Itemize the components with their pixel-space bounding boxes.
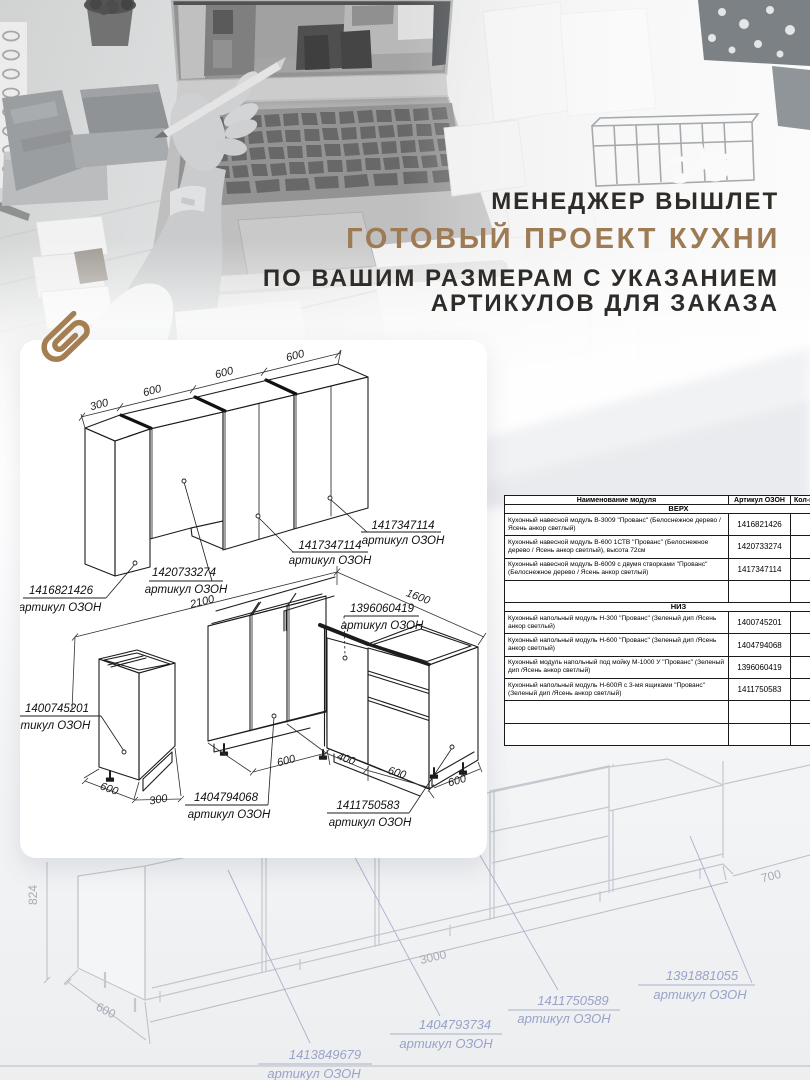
svg-text:3000: 3000 [418, 947, 448, 967]
svg-text:600: 600 [142, 383, 164, 400]
svg-text:артикул ОЗОН: артикул ОЗОН [20, 720, 91, 732]
svg-text:1411750583: 1411750583 [336, 800, 400, 812]
svg-text:артикул ОЗОН: артикул ОЗОН [267, 1066, 361, 1080]
svg-text:600: 600 [214, 365, 236, 382]
svg-text:1413849679: 1413849679 [289, 1047, 361, 1062]
svg-text:артикул ОЗОН: артикул ОЗОН [517, 1011, 611, 1026]
svg-text:400: 400 [335, 750, 357, 768]
svg-text:600: 600 [276, 753, 298, 770]
svg-text:артикул ОЗОН: артикул ОЗОН [289, 555, 372, 567]
svg-text:артикул ОЗОН: артикул ОЗОН [329, 817, 412, 829]
svg-text:1404793734: 1404793734 [419, 1017, 491, 1032]
svg-text:1417347114: 1417347114 [371, 520, 434, 532]
svg-text:824: 824 [26, 885, 40, 905]
svg-text:600: 600 [98, 780, 120, 798]
svg-text:артикул ОЗОН: артикул ОЗОН [341, 620, 424, 632]
svg-text:артикул ОЗОН: артикул ОЗОН [188, 809, 271, 821]
svg-text:600: 600 [285, 348, 307, 365]
svg-text:артикул ОЗОН: артикул ОЗОН [362, 535, 445, 547]
svg-text:1391881055: 1391881055 [666, 968, 739, 983]
svg-text:1396060419: 1396060419 [350, 603, 415, 615]
svg-text:артикул ОЗОН: артикул ОЗОН [653, 987, 747, 1002]
svg-text:1411750589: 1411750589 [537, 993, 608, 1008]
svg-text:600: 600 [94, 1000, 118, 1022]
svg-text:700: 700 [760, 867, 783, 886]
svg-text:артикул ОЗОН: артикул ОЗОН [145, 584, 228, 596]
svg-text:1417347114: 1417347114 [298, 540, 361, 552]
svg-text:артикул ОЗОН: артикул ОЗОН [20, 602, 102, 614]
svg-text:артикул ОЗОН: артикул ОЗОН [399, 1036, 493, 1051]
svg-text:1404794068: 1404794068 [194, 792, 259, 804]
svg-text:1420733274: 1420733274 [152, 567, 216, 579]
svg-text:1416821426: 1416821426 [29, 585, 94, 597]
svg-text:1400745201: 1400745201 [25, 703, 89, 715]
svg-text:300: 300 [148, 792, 169, 807]
